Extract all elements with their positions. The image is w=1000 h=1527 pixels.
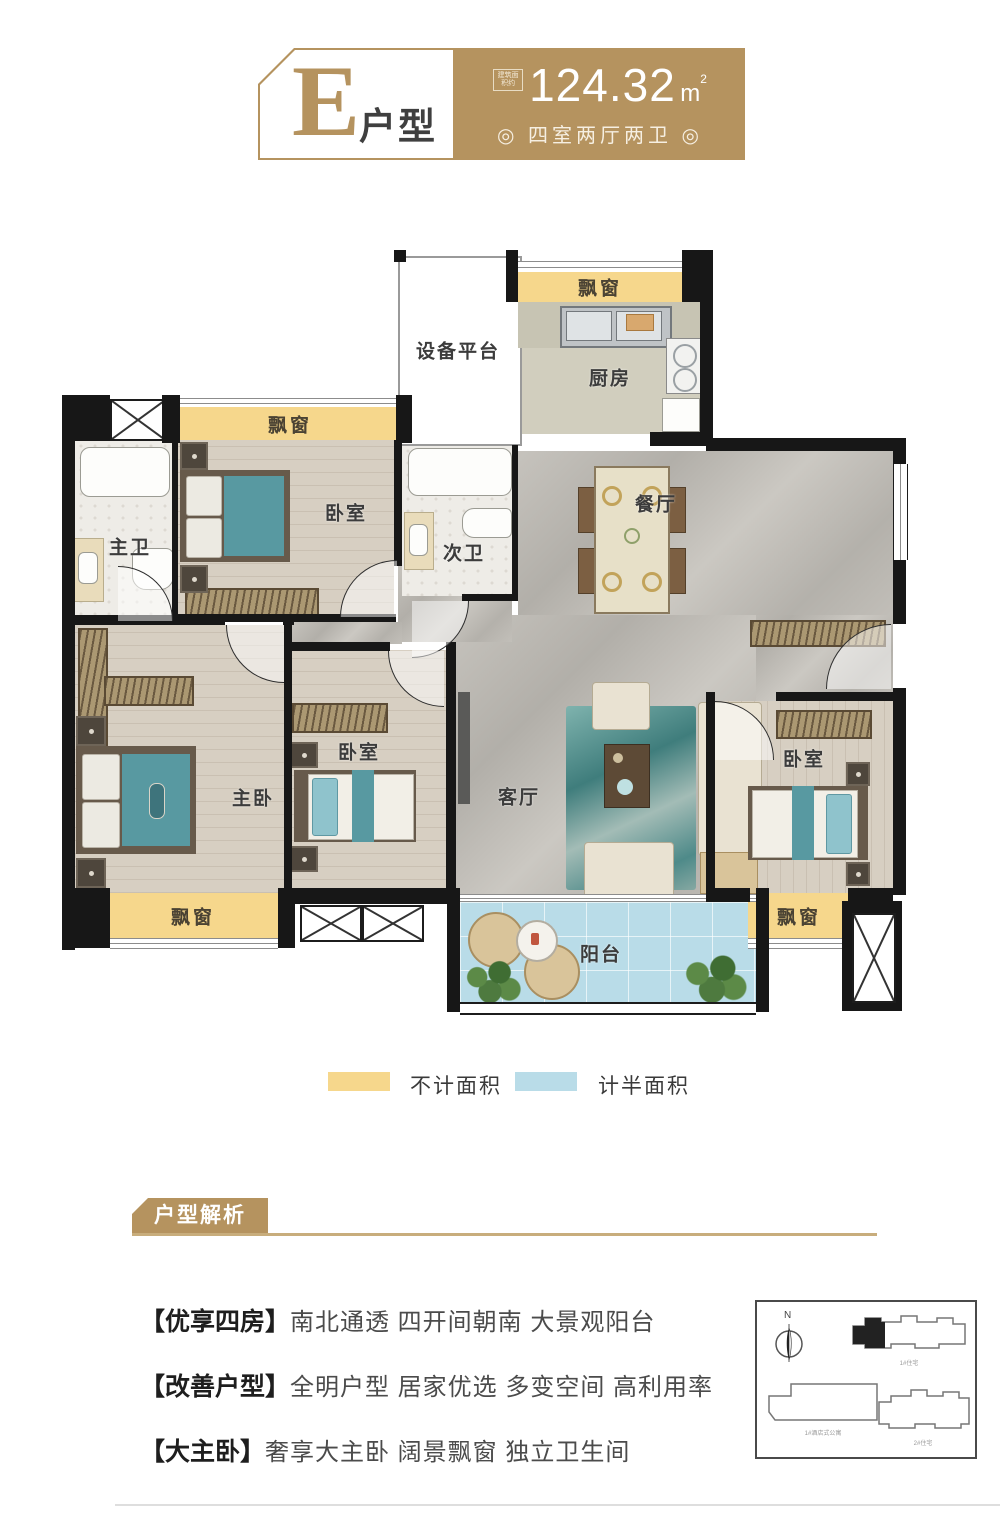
wall xyxy=(512,445,518,601)
nightstand xyxy=(180,442,208,470)
shaft-window xyxy=(110,399,166,441)
pillow xyxy=(82,754,120,800)
wall xyxy=(292,642,390,651)
pillow xyxy=(82,802,120,848)
wall xyxy=(396,395,412,443)
bay-window-label: 飘窗 xyxy=(578,274,622,301)
wall xyxy=(706,692,715,895)
analysis-item-tag: 【优享四房】 xyxy=(140,1308,290,1336)
analysis-item: 【大主卧】奢享大主卧 阔景飘窗 独立卫生间 xyxy=(140,1432,630,1468)
dining-floor xyxy=(518,451,893,621)
plant xyxy=(458,958,522,1006)
room-label-bedroom-right: 卧室 xyxy=(783,745,825,772)
pillow xyxy=(186,518,222,558)
analysis-item: 【改善户型】全明户型 居家优选 多变空间 高利用率 xyxy=(140,1367,713,1403)
tray xyxy=(626,314,654,331)
room-label-balcony: 阳台 xyxy=(580,940,622,967)
wall xyxy=(893,688,906,895)
room-label-equipment-platform: 设备平台 xyxy=(416,337,500,364)
building-top xyxy=(849,1312,969,1356)
pillow xyxy=(312,778,338,836)
stove xyxy=(666,338,702,394)
wall xyxy=(447,888,460,1012)
nightstand xyxy=(76,858,106,888)
wall xyxy=(293,888,447,904)
sofa xyxy=(584,842,674,898)
bed-cover xyxy=(122,754,190,846)
footer-divider xyxy=(115,1504,1000,1506)
analysis-item-tag: 【改善户型】 xyxy=(140,1373,290,1401)
wall xyxy=(756,888,769,1012)
wall xyxy=(62,395,110,441)
building-bottom-right-label: 2#住宅 xyxy=(914,1438,933,1447)
wall xyxy=(62,395,75,950)
wardrobe xyxy=(104,676,194,706)
legend-label-excluded-area: 不计面积 xyxy=(410,1070,502,1100)
wall xyxy=(506,250,518,302)
nightstand xyxy=(290,846,318,872)
building-bottom-left-label: 1#酒店式公寓 xyxy=(805,1428,842,1437)
wall xyxy=(162,395,180,443)
sink-basin xyxy=(566,311,612,341)
analysis-item-tag: 【大主卧】 xyxy=(140,1438,265,1466)
bay-window-label: 飘窗 xyxy=(171,903,215,930)
analysis-item-text: 奢享大主卧 阔景飘窗 独立卫生间 xyxy=(265,1439,630,1466)
bathtub xyxy=(408,448,512,496)
coffee-table xyxy=(604,744,650,808)
bay-window-label: 飘窗 xyxy=(268,411,312,438)
room-label-kitchen: 厨房 xyxy=(589,364,631,391)
wall xyxy=(848,888,893,902)
nightstand xyxy=(290,742,318,768)
legend-swatch-half-area xyxy=(515,1072,577,1091)
building-bottom-left xyxy=(765,1378,885,1426)
room-label-master-bath: 主卫 xyxy=(109,533,151,560)
wall xyxy=(284,622,292,894)
room-label-master-bedroom: 主卧 xyxy=(232,784,274,811)
bay-window-label: 飘窗 xyxy=(777,903,821,930)
wall xyxy=(394,440,402,566)
wall xyxy=(893,560,906,624)
window xyxy=(893,464,908,560)
building-top-label: 1#住宅 xyxy=(900,1358,919,1367)
window xyxy=(362,905,424,942)
analysis-divider xyxy=(132,1233,877,1236)
room-label-bedroom-mid: 卧室 xyxy=(338,738,380,765)
balcony-table xyxy=(516,920,558,962)
bed-cover xyxy=(224,476,284,556)
wall xyxy=(893,438,906,464)
wall xyxy=(172,440,178,622)
pillow xyxy=(186,476,222,516)
compass-icon xyxy=(771,1318,807,1364)
nightstand xyxy=(180,565,208,593)
wall xyxy=(394,250,406,262)
legend-swatch-excluded-area xyxy=(328,1072,390,1091)
wardrobe xyxy=(292,703,388,733)
bay-glazing xyxy=(110,938,278,949)
legend-label-half-area: 计半面积 xyxy=(598,1070,690,1100)
plant xyxy=(676,952,748,1006)
analysis-item: 【优享四房】南北通透 四开间朝南 大景观阳台 xyxy=(140,1302,655,1338)
pillow xyxy=(826,794,852,854)
corridor-floor xyxy=(292,622,402,644)
wall xyxy=(706,888,750,902)
wall xyxy=(62,888,110,948)
wall xyxy=(462,594,516,601)
sink xyxy=(409,524,428,556)
bed-runner xyxy=(792,786,814,860)
wall xyxy=(776,692,893,701)
bathtub xyxy=(80,447,170,497)
analysis-item-text: 南北通透 四开间朝南 大景观阳台 xyxy=(290,1309,655,1336)
fridge xyxy=(662,398,700,432)
building-bottom-right xyxy=(875,1384,973,1436)
window xyxy=(300,905,362,942)
toilet xyxy=(462,508,512,538)
analysis-title-badge: 户型解析 xyxy=(132,1198,268,1234)
floorplan-flyer: E 户型 建筑面积约124.32 m2 ◎ 四室两厅两卫 ◎ xyxy=(0,0,1000,1527)
wardrobe xyxy=(776,710,872,739)
room-label-living: 客厅 xyxy=(498,783,540,810)
nightstand xyxy=(846,762,870,786)
tv-cabinet xyxy=(458,692,470,804)
floorplan-canvas: 飘窗 飘窗 飘窗 飘窗 设备平台 厨房 餐厅 主卫 卧室 次卫 主卧 卧室 客厅… xyxy=(0,0,1000,1050)
dining-chair xyxy=(668,548,686,594)
room-label-dining: 餐厅 xyxy=(635,490,677,517)
sink xyxy=(78,552,98,584)
wall xyxy=(700,250,713,446)
wall xyxy=(706,438,906,451)
nightstand xyxy=(76,716,106,746)
bed-runner xyxy=(352,770,374,842)
armchair xyxy=(592,682,650,730)
analysis-item-text: 全明户型 居家优选 多变空间 高利用率 xyxy=(290,1374,713,1401)
balcony-railing xyxy=(460,1002,756,1015)
dining-table xyxy=(594,466,670,614)
wall xyxy=(650,432,713,446)
room-label-second-bath: 次卫 xyxy=(443,539,485,566)
shaft-window xyxy=(852,913,896,1003)
sitemap-box: N 1#住宅 1#酒店式公寓 2#住宅 xyxy=(755,1300,977,1459)
room-label-bedroom-top: 卧室 xyxy=(325,499,367,526)
wall xyxy=(446,642,456,894)
nightstand xyxy=(846,862,870,886)
